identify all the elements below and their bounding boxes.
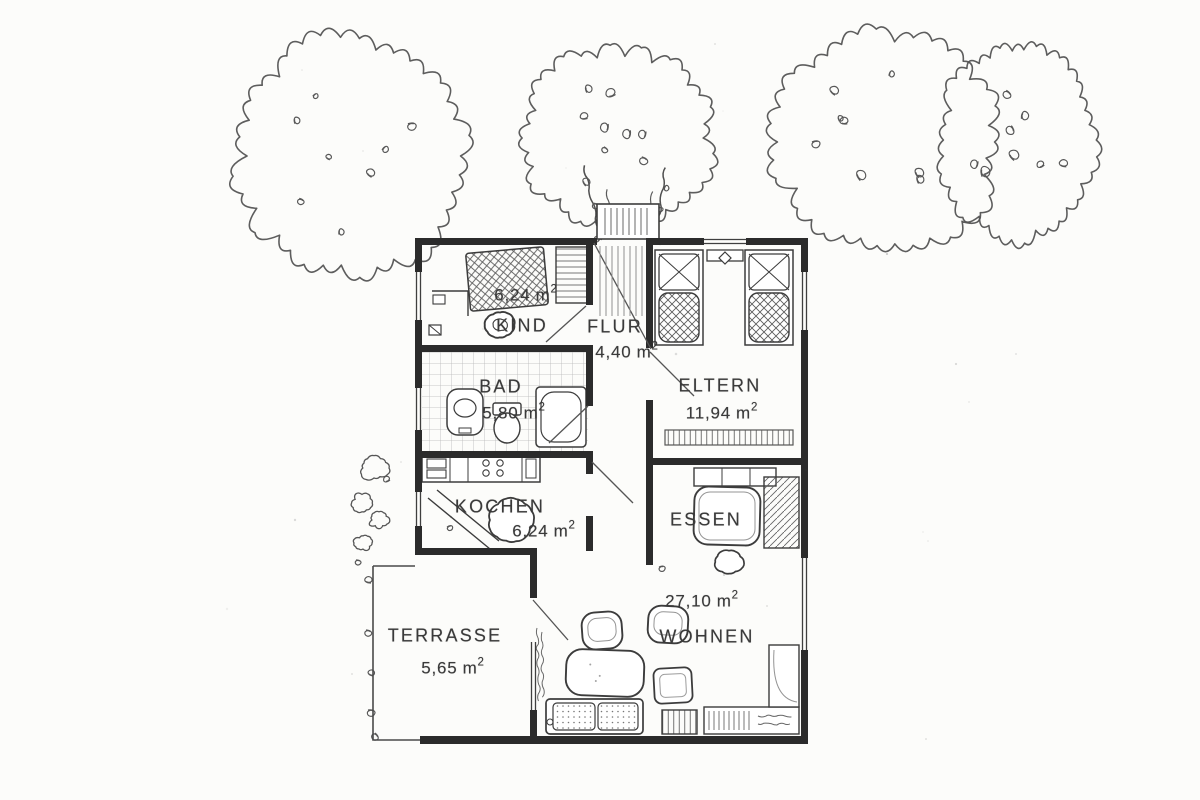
wall-segment (586, 238, 593, 305)
area-sup: 2 (569, 520, 576, 532)
scan-speck (927, 540, 929, 542)
wall-segment (646, 238, 704, 245)
wall-segment (801, 650, 808, 744)
area-value: 4,40 (595, 342, 631, 361)
stool (662, 710, 697, 734)
wall-segment (586, 458, 593, 474)
room-area-wohnen: 27,10m2 (665, 591, 739, 612)
area-unit: m (536, 285, 551, 304)
scan-speck (925, 738, 927, 740)
coffee-table (565, 649, 645, 698)
leaf-squiggle (621, 128, 633, 140)
area-unit: m (637, 342, 652, 361)
floor-plan-drawing (0, 0, 1200, 800)
door-curtain-squiggle (536, 628, 540, 701)
leaf-squiggle (605, 87, 618, 100)
wall-segment (646, 400, 653, 565)
tree-canopy-far-right (937, 42, 1102, 249)
scan-speck (351, 673, 353, 675)
washbasin-bowl (454, 399, 476, 417)
scan-speck (226, 608, 228, 610)
room-label-essen: ESSEN (670, 510, 742, 531)
scan-speck (722, 110, 724, 112)
wall-segment (530, 710, 537, 744)
scan-speck (565, 167, 566, 168)
sofa-cushion (553, 703, 595, 730)
terrace-outline (373, 566, 421, 740)
scan-speck (922, 531, 923, 532)
area-unit: m (463, 658, 478, 677)
leaf-squiggle (292, 116, 301, 125)
leaf-squiggle (914, 174, 925, 185)
leaf-squiggle (1058, 158, 1069, 169)
scan-speck (450, 516, 452, 518)
scan-speck (766, 605, 768, 607)
shrub-squiggle (364, 628, 373, 637)
table-speck (589, 664, 591, 666)
area-sup: 2 (551, 284, 558, 296)
scan-speck (723, 574, 725, 576)
stove-burner (497, 460, 503, 466)
wall-segment (746, 238, 808, 245)
wall-segment (415, 548, 536, 555)
scan-speck (362, 150, 363, 151)
wall-segment (415, 345, 593, 352)
blanket (659, 293, 699, 342)
room-label-eltern: ELTERN (679, 376, 762, 397)
scan-speck (805, 469, 807, 471)
scan-speck (675, 353, 678, 356)
wall-segment (415, 238, 422, 272)
wall-segment (586, 516, 593, 551)
blanket (749, 293, 789, 342)
leaf-squiggle (297, 197, 305, 205)
area-unit: m (554, 521, 569, 540)
leaf-squiggle (579, 111, 590, 122)
area-unit: m (524, 403, 539, 422)
table-speck (599, 675, 601, 677)
shrub (351, 493, 372, 513)
room-area-eltern: 11,94m2 (686, 403, 758, 424)
area-unit: m (717, 591, 732, 610)
sink-basin (427, 459, 446, 468)
sink-basin (427, 470, 446, 478)
scan-speck (776, 322, 777, 323)
area-sup: 2 (751, 402, 758, 414)
leaf-squiggle (367, 169, 375, 177)
stove-burner (483, 470, 489, 476)
wall-segment (415, 238, 597, 245)
wall-segment (530, 548, 537, 598)
door-swing (592, 462, 633, 503)
leaf-squiggle (382, 146, 389, 153)
area-sup: 2 (652, 341, 659, 353)
area-value: 5,80 (482, 403, 518, 422)
shrub (369, 511, 389, 528)
armchair (581, 611, 623, 651)
wall-segment (646, 238, 653, 348)
room-label-wohnen: WOHNEN (659, 627, 754, 648)
leaf-squiggle (810, 138, 821, 149)
leaf-squiggle (599, 121, 611, 133)
side-table (653, 667, 693, 704)
shelf-kind (556, 247, 588, 303)
scan-speck (789, 533, 791, 535)
scan-speck (968, 401, 969, 402)
shrub-squiggle (364, 575, 373, 585)
area-sup: 2 (732, 590, 739, 602)
scan-speck (961, 220, 963, 222)
area-value: 5,65 (421, 658, 457, 677)
scan-speck (400, 461, 402, 463)
area-value: 27,10 (665, 591, 712, 610)
door-swing (533, 600, 568, 640)
leaf-squiggle (1036, 160, 1045, 169)
counter-appliance (526, 459, 536, 478)
leaf-squiggle (602, 147, 608, 153)
room-label-kochen: KOCHEN (455, 497, 545, 518)
scan-speck (714, 43, 716, 45)
scan-speck (955, 363, 957, 365)
stove-burner (483, 460, 489, 466)
leaf-squiggle (1008, 149, 1019, 161)
room-label-flur: FLUR (587, 317, 643, 338)
leaf-squiggle (855, 169, 868, 182)
scanned-floor-plan-page: KIND 6,24m2 FLUR 4,40m2 BAD 5,80m2 ELTER… (0, 0, 1200, 800)
wall-segment (646, 458, 808, 465)
desk-chair-kind (433, 295, 445, 304)
scan-speck (482, 328, 484, 330)
shrub (353, 535, 372, 550)
leaf-squiggle (888, 70, 896, 78)
leaf-squiggle (1005, 124, 1016, 135)
shrub-squiggle (354, 558, 362, 566)
wall-segment (801, 330, 808, 558)
entry-porch (597, 204, 659, 239)
dining-chair (715, 550, 744, 574)
area-value: 6,24 (494, 285, 530, 304)
room-area-kind: 6,24m2 (494, 285, 557, 306)
room-area-flur: 4,40m2 (595, 342, 658, 363)
scan-speck (294, 519, 296, 521)
shrub-squiggle (368, 669, 376, 677)
room-label-bad: BAD (479, 377, 523, 398)
room-label-kind: KIND (496, 316, 548, 337)
radiator (665, 430, 793, 445)
leaf-squiggle (969, 159, 980, 170)
leaf-squiggle (830, 86, 839, 95)
sofa-cushion (598, 703, 638, 730)
sideboard (764, 477, 799, 548)
kitchen-squiggle (446, 524, 454, 531)
stove-burner (497, 470, 503, 476)
leaf-squiggle (326, 154, 332, 160)
leaf-squiggle (639, 156, 648, 166)
area-value: 6,24 (512, 521, 548, 540)
scan-speck (1015, 353, 1017, 355)
leaf-squiggle (977, 165, 992, 180)
wall-segment (586, 352, 593, 406)
washbasin-tap (459, 428, 471, 433)
room-area-bad: 5,80m2 (482, 403, 545, 424)
leaf-squiggle (583, 84, 593, 94)
leaf-squiggle (1003, 90, 1011, 98)
leaf-squiggle (337, 228, 345, 236)
room-label-terrasse: TERRASSE (388, 626, 503, 647)
area-sup: 2 (539, 402, 546, 414)
room-area-terrasse: 5,65m2 (421, 658, 484, 679)
leaf-squiggle (839, 116, 850, 127)
door-swing (546, 306, 586, 342)
wall-segment (415, 320, 422, 388)
wall-segment (801, 238, 808, 272)
area-unit: m (736, 403, 751, 422)
scan-speck (301, 69, 303, 71)
leaf-squiggle (1019, 110, 1030, 121)
area-value: 11,94 (686, 403, 731, 422)
tree-canopy-right (766, 24, 999, 252)
door-curtain-squiggle (541, 632, 544, 697)
wall-segment (415, 430, 422, 492)
wall-segment (415, 451, 593, 458)
leaf-squiggle (406, 120, 418, 132)
table-speck (595, 680, 597, 682)
wall-unit (704, 707, 799, 734)
scan-speck (886, 253, 888, 255)
area-sup: 2 (478, 657, 485, 669)
plant-squiggle (658, 564, 667, 573)
shrub-squiggle (366, 707, 376, 717)
leaf-squiggle (312, 93, 318, 99)
room-area-kochen: 6,24m2 (512, 521, 575, 542)
leaf-squiggle (637, 129, 648, 140)
wall-segment (420, 736, 808, 744)
